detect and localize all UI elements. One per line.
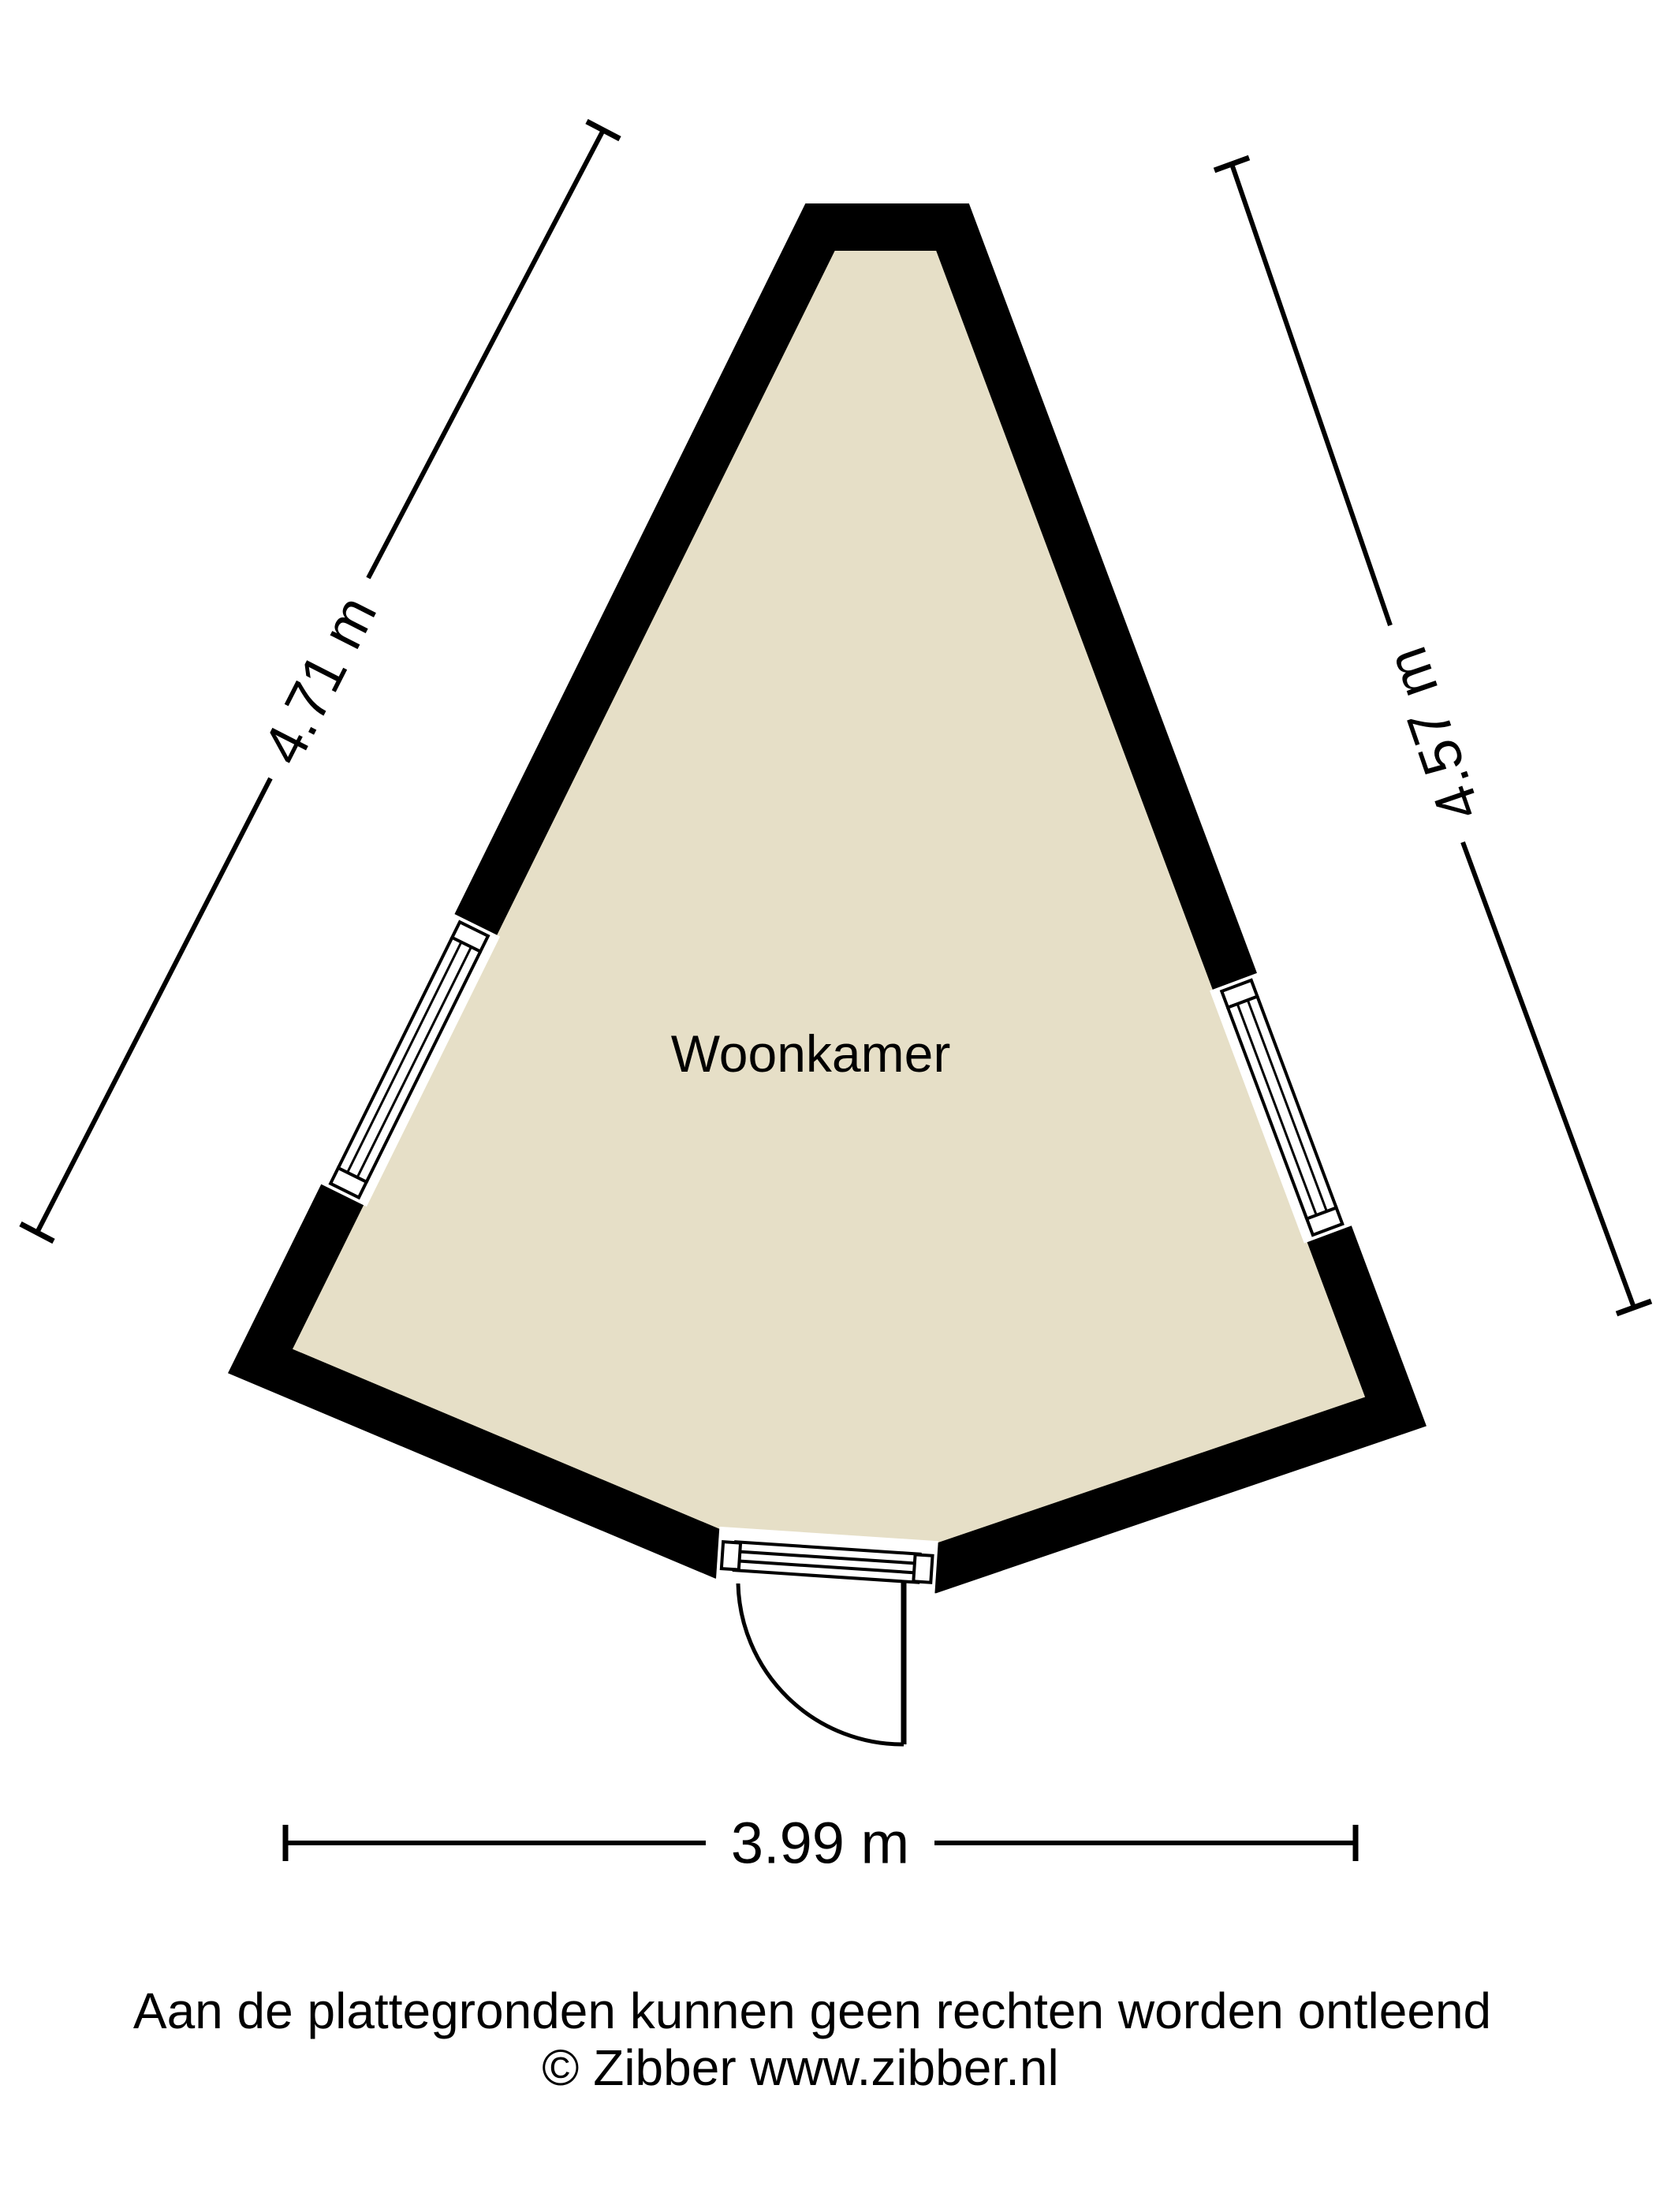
dim-label-left: 4.71 m: [250, 585, 390, 774]
dim-line: [1463, 842, 1634, 1307]
door-swing-arc: [738, 1583, 904, 1744]
door-jamb-box: [913, 1554, 932, 1582]
dim-label-right: 4.57 m: [1373, 640, 1493, 830]
dim-end-tick: [21, 1224, 54, 1241]
dim-end-tick: [587, 121, 620, 139]
footer-credit: © Zibber www.zibber.nl: [542, 2039, 1058, 2096]
door-jamb-box: [722, 1542, 740, 1569]
room-outline: [260, 227, 1396, 1569]
footer-disclaimer: Aan de plattegronden kunnen geen rechten…: [133, 1983, 1491, 2039]
dim-label-bottom: 3.99 m: [731, 1811, 909, 1876]
room-label: Woonkamer: [671, 1024, 951, 1083]
dim-line: [37, 778, 270, 1233]
dim-line: [368, 130, 603, 578]
dim-line: [1232, 164, 1390, 625]
floor-plan-svg: Woonkamer 4.71 m 4.57 m 3.99 m Aan de pl…: [0, 0, 1656, 2208]
